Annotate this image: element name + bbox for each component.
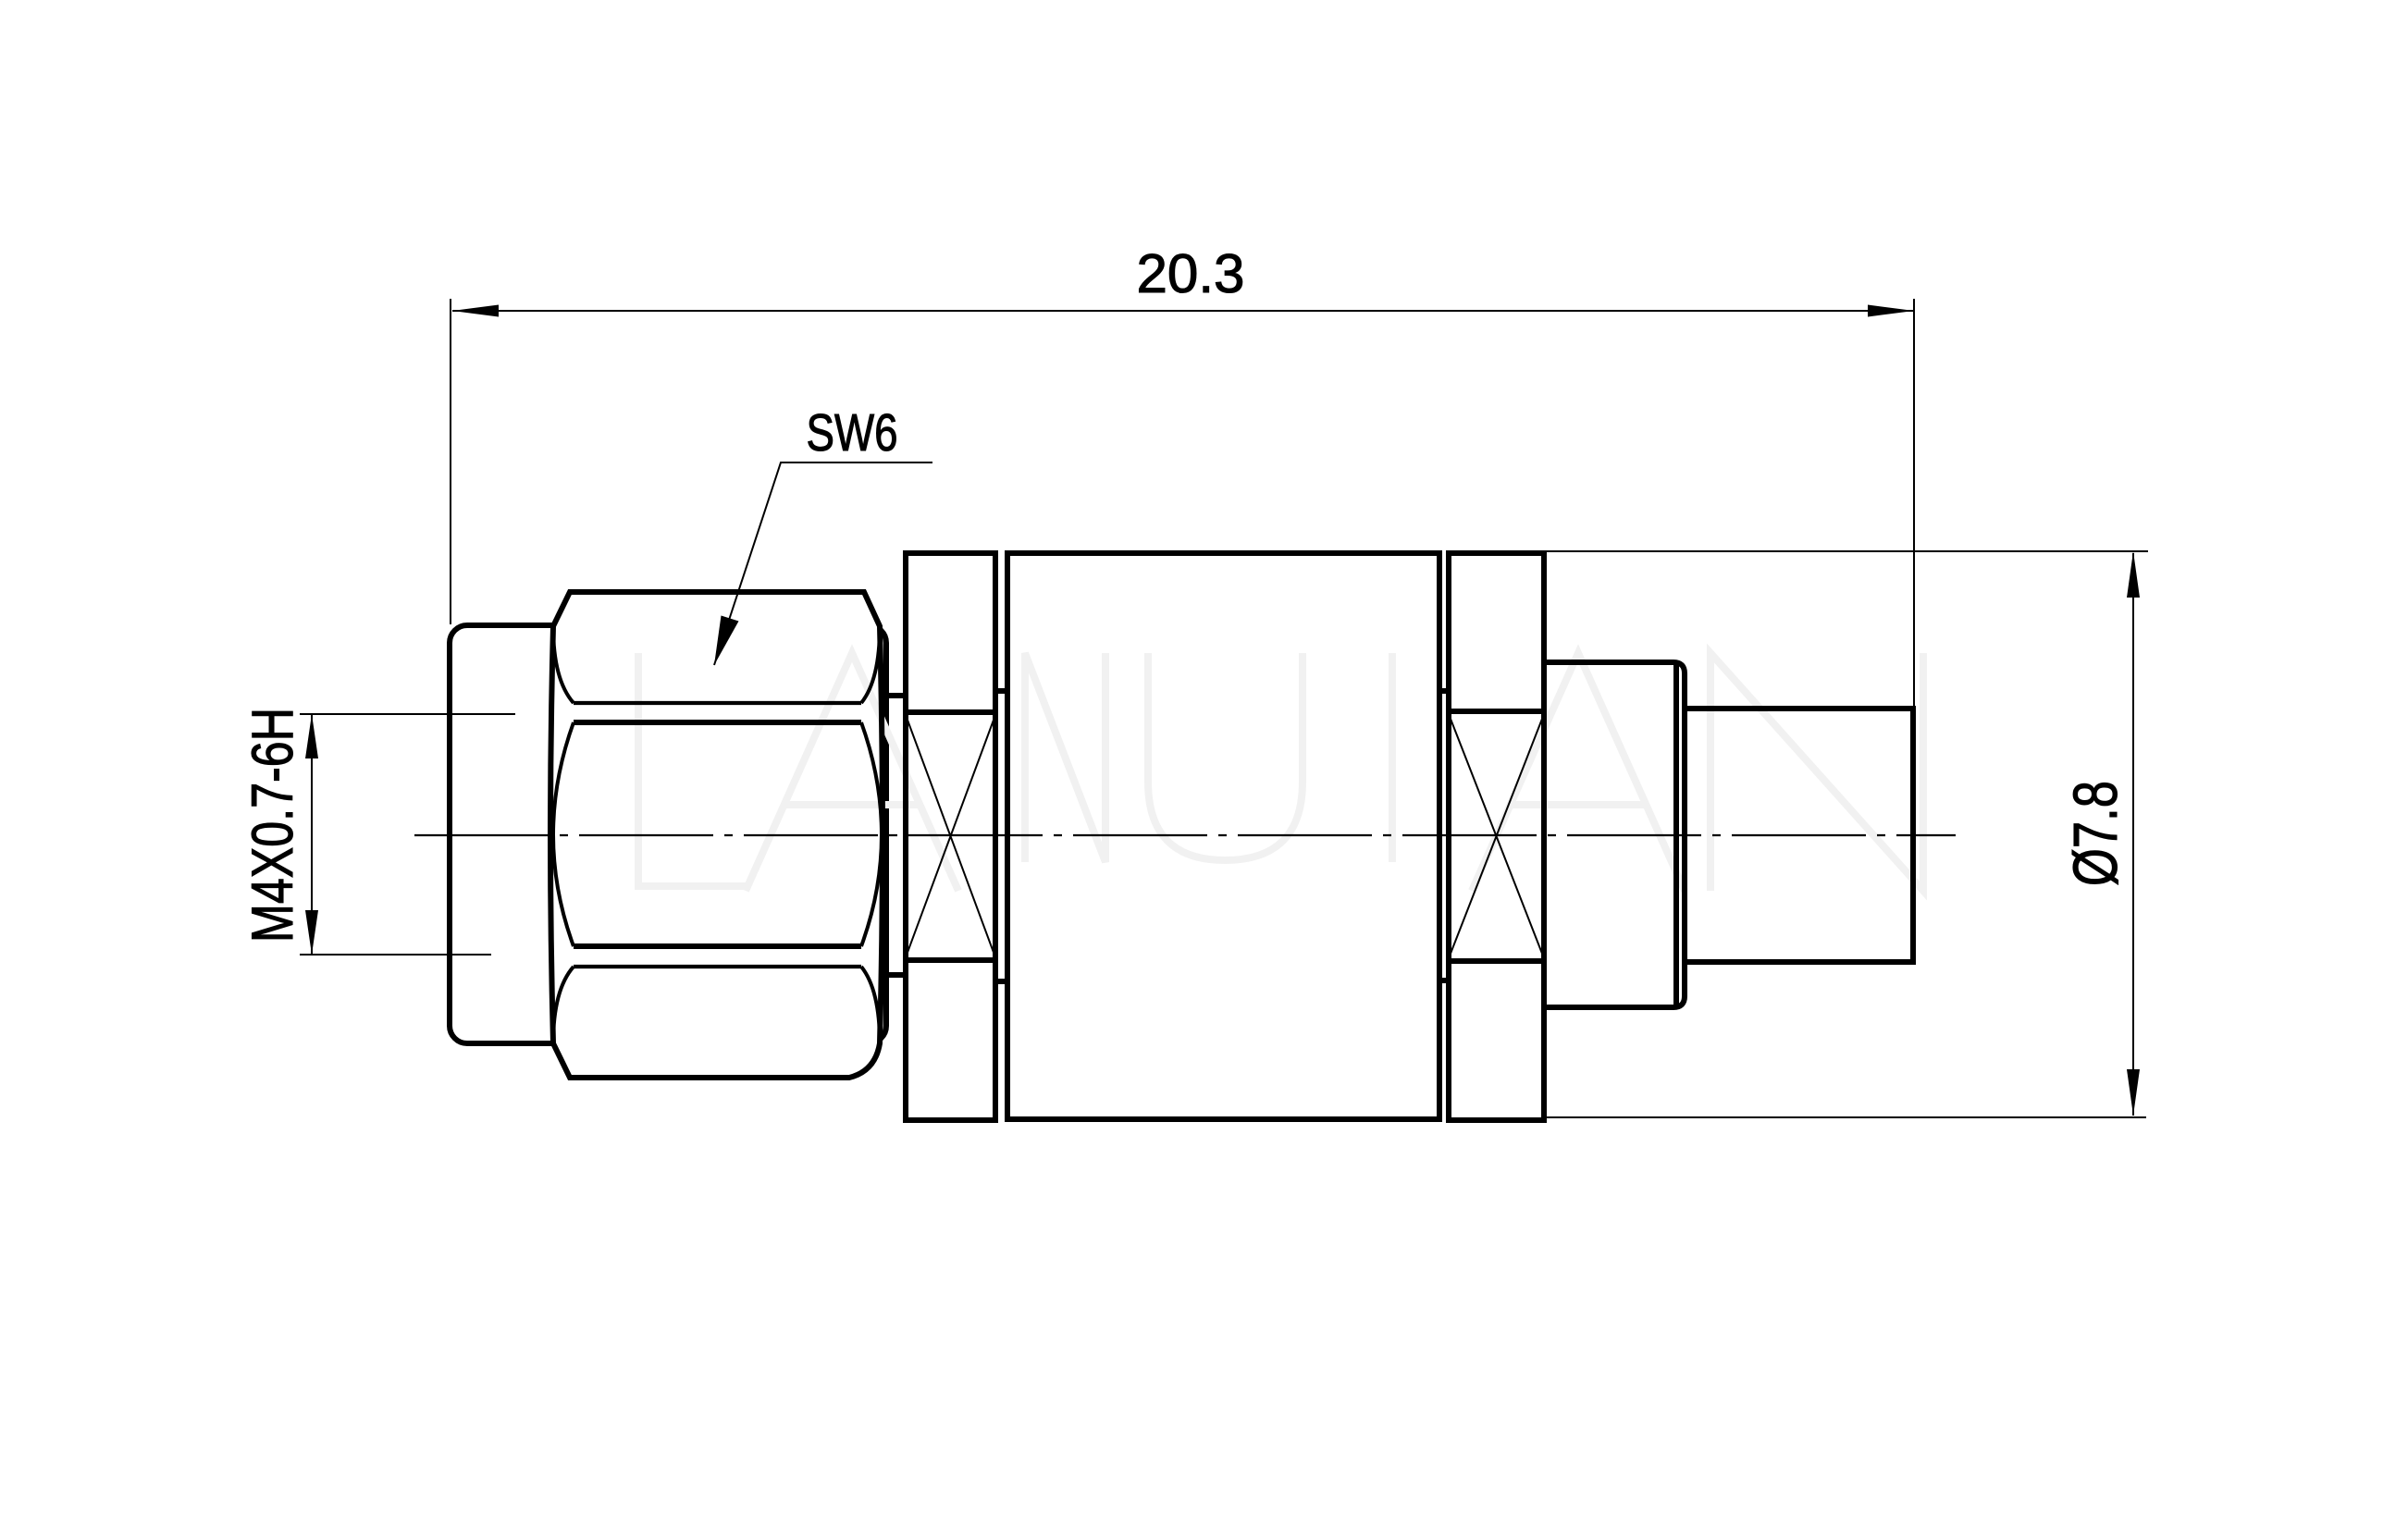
svg-text:SW6: SW6: [807, 403, 898, 462]
svg-text:20.3: 20.3: [1137, 243, 1245, 304]
svg-text:Ø7.8: Ø7.8: [2061, 781, 2130, 886]
svg-text:M4X0.7-6H: M4X0.7-6H: [241, 708, 305, 943]
